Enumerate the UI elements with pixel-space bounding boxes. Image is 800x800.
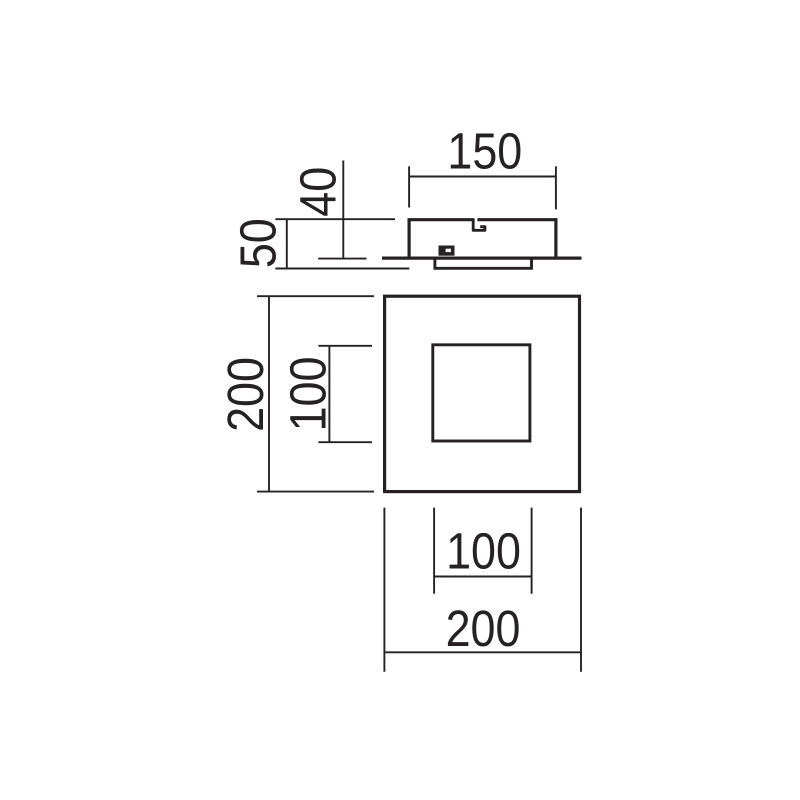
- svg-text:50: 50: [231, 218, 287, 268]
- svg-text:200: 200: [218, 357, 274, 432]
- svg-text:100: 100: [281, 357, 337, 432]
- svg-text:150: 150: [447, 124, 522, 180]
- svg-text:40: 40: [291, 167, 347, 217]
- svg-text:100: 100: [446, 524, 521, 580]
- svg-text:200: 200: [446, 602, 521, 658]
